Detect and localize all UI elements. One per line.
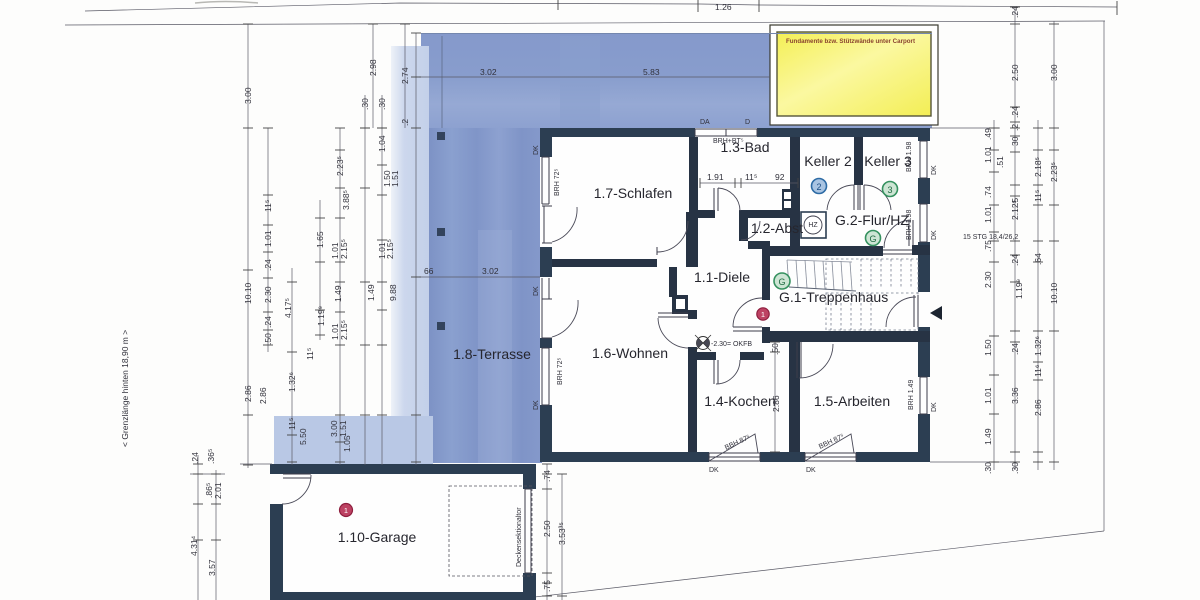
svg-text:2.86: 2.86 [1033,399,1043,416]
svg-text:5.50: 5.50 [298,428,308,445]
svg-text:G.1-Treppenhaus: G.1-Treppenhaus [779,289,888,305]
svg-text:.2: .2 [1010,124,1020,131]
svg-text:3.00: 3.00 [1049,64,1059,81]
svg-text:11⁵: 11⁵ [1033,190,1043,202]
svg-text:.30: .30 [1010,462,1020,474]
svg-text:DK: DK [806,467,816,474]
svg-text:.30: .30 [377,98,387,110]
svg-text:1.91: 1.91 [707,172,724,182]
svg-text:1.8-Terrasse: 1.8-Terrasse [453,346,531,362]
svg-text:< Grenzlänge hinten 18,90 m >: < Grenzlänge hinten 18,90 m > [120,330,130,447]
svg-text:.24: .24 [1010,106,1020,118]
svg-text:.24: .24 [263,316,273,328]
svg-text:BRH 1.98: BRH 1.98 [906,210,913,240]
svg-text:3.02: 3.02 [480,67,497,77]
svg-text:15 STG 18,4/26,2: 15 STG 18,4/26,2 [963,234,1018,241]
svg-text:DK: DK [931,165,938,175]
svg-text:.74: .74 [983,186,993,198]
svg-text:Keller 2: Keller 2 [804,153,852,169]
svg-text:1.65: 1.65 [315,231,325,248]
svg-text:2.15⁵: 2.15⁵ [385,239,395,259]
svg-text:.30: .30 [983,462,993,474]
svg-text:.50: .50 [770,343,780,355]
svg-text:3.57: 3.57 [207,559,217,576]
svg-text:1.4-Kochen: 1.4-Kochen [704,393,776,409]
svg-text:.51: .51 [995,156,1005,168]
svg-text:2.86: 2.86 [243,385,253,402]
svg-text:1.10-Garage: 1.10-Garage [338,529,417,545]
svg-text:9.88: 9.88 [388,284,398,301]
svg-text:D: D [745,119,750,126]
svg-text:1.49: 1.49 [366,284,376,301]
svg-text:.24: .24 [1010,6,1020,18]
svg-text:4.17⁵: 4.17⁵ [283,298,293,318]
svg-text:1: 1 [344,506,348,515]
svg-text:1.01: 1.01 [263,230,273,247]
svg-text:2.12⁵: 2.12⁵ [1010,200,1020,220]
svg-text:.24: .24 [190,452,200,464]
svg-text:BRH+BT⁵: BRH+BT⁵ [713,138,744,145]
svg-text:.75: .75 [542,580,552,592]
svg-text:1.6-Wohnen: 1.6-Wohnen [592,345,668,361]
svg-text:Fundamente bzw. Stützwände unt: Fundamente bzw. Stützwände unter Carport [786,38,915,45]
svg-text:DK: DK [533,400,540,410]
svg-text:1.05: 1.05 [342,435,352,452]
svg-text:2.50: 2.50 [1010,64,1020,81]
svg-text:3.88⁵: 3.88⁵ [341,190,351,210]
svg-text:2.74: 2.74 [400,67,410,84]
svg-text:2.86: 2.86 [258,387,268,404]
svg-text:4.31⁴: 4.31⁴ [189,535,199,556]
svg-text:.24: .24 [1010,343,1020,355]
svg-text:DK: DK [533,145,540,155]
svg-text:.24: .24 [263,259,273,271]
svg-text:3.00: 3.00 [243,87,253,104]
svg-text:2.98: 2.98 [368,59,378,76]
svg-text:BRH 1.49: BRH 1.49 [908,380,915,410]
svg-text:2.30: 2.30 [983,271,993,288]
svg-text:-2.30= OKFB: -2.30= OKFB [711,341,752,348]
svg-text:1.32⁶: 1.32⁶ [287,372,297,392]
svg-text:BRH 72⁵: BRH 72⁵ [554,168,561,196]
svg-text:G: G [869,234,876,244]
svg-text:1.5-Arbeiten: 1.5-Arbeiten [814,393,890,409]
svg-text:BRH 72⁵: BRH 72⁵ [557,357,564,385]
svg-text:DK: DK [931,402,938,412]
svg-text:BRH 1.98: BRH 1.98 [906,142,913,172]
svg-text:1: 1 [761,310,765,319]
svg-text:10.10: 10.10 [1049,282,1059,304]
svg-text:1.01: 1.01 [983,146,993,163]
svg-text:10.10: 10.10 [243,282,253,304]
svg-text:1.01: 1.01 [983,387,993,404]
svg-text:.74: .74 [542,470,552,482]
svg-text:3.36: 3.36 [1010,387,1020,404]
svg-text:1.49: 1.49 [983,428,993,445]
svg-text:HZ: HZ [808,222,818,229]
svg-text:DK: DK [533,286,540,296]
svg-text:DK: DK [931,230,938,240]
svg-text:2.23⁵: 2.23⁵ [1049,162,1059,182]
svg-text:2.01: 2.01 [213,482,223,499]
svg-text:2.18⁵: 2.18⁵ [1033,157,1043,177]
svg-text:11⁵: 11⁵ [745,172,757,182]
svg-text:1.04: 1.04 [377,135,387,152]
svg-text:66: 66 [424,266,434,276]
svg-text:1.2-Abst: 1.2-Abst [751,220,803,236]
svg-text:2: 2 [816,182,821,192]
svg-text:1.49: 1.49 [333,285,343,302]
svg-text:92: 92 [775,172,785,182]
svg-text:G.2-Flur/HZ: G.2-Flur/HZ [835,212,909,228]
svg-text:1.7-Schlafen: 1.7-Schlafen [594,185,673,201]
svg-text:3.02: 3.02 [482,266,499,276]
svg-text:1.26: 1.26 [715,2,732,12]
svg-text:2.86: 2.86 [771,395,781,412]
svg-text:.36⁵: .36⁵ [206,449,216,464]
svg-text:.30: .30 [360,98,370,110]
svg-text:2.15⁵: 2.15⁵ [339,320,349,340]
svg-text:11⁵: 11⁵ [305,348,315,360]
svg-text:3: 3 [887,185,892,195]
svg-text:2.30: 2.30 [263,286,273,303]
svg-text:1.1-Diele: 1.1-Diele [694,269,750,285]
svg-text:.49: .49 [983,128,993,140]
svg-text:2.23⁵: 2.23⁵ [335,156,345,176]
svg-text:.24: .24 [1010,254,1020,266]
svg-text:G: G [778,277,785,287]
svg-text:11⁶: 11⁶ [1033,365,1043,377]
svg-text:DA: DA [700,119,710,126]
svg-text:Keller 3: Keller 3 [864,153,912,169]
svg-text:1.51: 1.51 [338,420,348,437]
svg-text:1.50: 1.50 [983,339,993,356]
svg-text:1.32⁶: 1.32⁶ [1033,336,1043,356]
svg-text:30: 30 [1010,136,1020,146]
svg-text:1.19⁹: 1.19⁹ [316,305,326,326]
svg-text:1.01: 1.01 [983,206,993,223]
svg-text:5.83: 5.83 [643,67,660,77]
svg-text:1.19⁹: 1.19⁹ [1014,278,1024,299]
svg-text:2.50: 2.50 [542,520,552,537]
svg-text:11⁵: 11⁵ [263,200,273,212]
svg-text:.75: .75 [983,240,993,252]
svg-text:3.53³⁵: 3.53³⁵ [557,522,567,545]
svg-text:2.15⁵: 2.15⁵ [339,239,349,259]
svg-text:Deckensektionaltor: Deckensektionaltor [516,507,523,567]
svg-text:.50: .50 [263,333,273,345]
svg-text:.2: .2 [400,119,410,126]
svg-text:11⁵: 11⁵ [287,418,297,430]
svg-text:1.51: 1.51 [390,170,400,187]
svg-text:DK: DK [709,467,719,474]
svg-text:.64: .64 [1033,253,1043,265]
